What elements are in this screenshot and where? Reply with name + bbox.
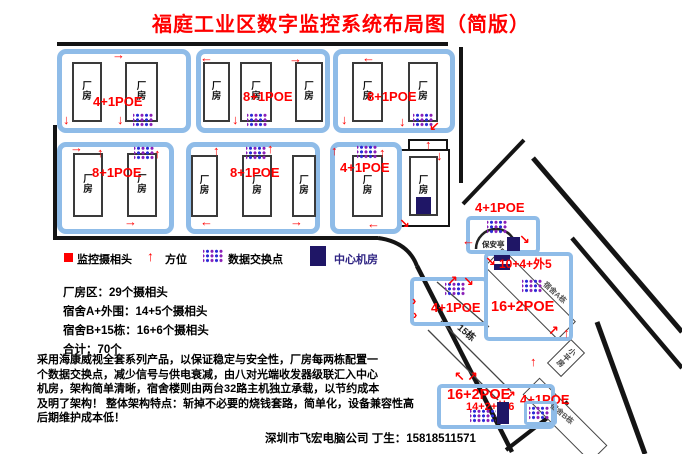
- security-booth-label: 保安亭: [482, 239, 505, 250]
- direction-arrow-icon: ←: [362, 51, 375, 64]
- poe-label: 4+1POE: [475, 201, 525, 214]
- poe-label: 16+2POE: [491, 300, 554, 315]
- direction-arrow-icon: →: [70, 141, 83, 154]
- factory-building: 厂房: [73, 153, 103, 217]
- direction-arrow-icon: ↓: [399, 115, 406, 128]
- road: [597, 322, 645, 454]
- direction-arrow-icon: ↗: [548, 324, 559, 337]
- direction-arrow-icon: ↑: [379, 146, 386, 159]
- direction-arrow-icon: ↗: [505, 389, 516, 402]
- server-room-legend-icon: [310, 246, 326, 266]
- factory-building: 厂房: [295, 62, 323, 122]
- description-line: 机房，架构简单清晰，宿舍楼则由两台32路主机独立承载，以节约成本: [37, 382, 414, 397]
- stats-line: 宿舍A+外围：14+5个摄相头: [63, 303, 207, 319]
- direction-arrow-icon: ↘: [399, 217, 410, 230]
- direction-arrow-icon: ↑: [267, 142, 274, 155]
- poe-label: 8+1POE: [367, 90, 417, 103]
- description-line: 采用海康威视全套系列产品，以保证稳定与安全性，厂房每两栋配置一: [37, 353, 414, 368]
- factory-building: 厂房: [203, 62, 230, 122]
- poe-label: 8+1POE: [243, 90, 293, 103]
- poe-label: 4+1POE: [93, 95, 143, 108]
- direction-arrow-icon: →: [289, 52, 302, 65]
- building-label: 厂房: [199, 176, 210, 197]
- direction-arrow-icon: ↓: [341, 113, 348, 126]
- direction-arrow-icon: ›: [412, 294, 416, 307]
- legend-direction-label: 方位: [165, 251, 187, 267]
- direction-arrow-icon: ↖: [454, 370, 465, 383]
- description-paragraph: 采用海康威视全套系列产品，以保证稳定与安全性，厂房每两栋配置一 个数据交换点，减…: [37, 353, 414, 426]
- data-exchange-dots: [134, 146, 154, 160]
- switch-legend-icon: [203, 249, 223, 263]
- data-exchange-dots: [133, 113, 153, 127]
- building-label: 厂房: [418, 176, 429, 197]
- direction-arrow-icon: ↙: [429, 120, 440, 133]
- poe-label: 4+1POE: [340, 161, 390, 174]
- building-label: 厂房: [362, 176, 373, 197]
- poe-label: 4+1POE: [431, 301, 481, 314]
- road: [572, 238, 682, 368]
- factory-building: 厂房: [292, 155, 316, 217]
- page-title: 福庭工业区数字监控系统布局图（简版）: [0, 8, 682, 37]
- poe-label: 8+1POE: [230, 166, 280, 179]
- direction-arrow-icon: ↑: [563, 326, 570, 339]
- direction-legend-icon: ↑: [147, 249, 154, 263]
- legend-camera-label: 监控摄相头: [77, 251, 132, 267]
- direction-arrow-icon: ›: [413, 308, 417, 321]
- direction-arrow-icon: ↓: [436, 149, 443, 162]
- direction-arrow-icon: ↘: [519, 233, 530, 246]
- direction-arrow-icon: ↑: [213, 144, 220, 157]
- building-label: 厂房: [304, 82, 315, 103]
- road: [463, 140, 524, 204]
- description-line: 后期维护成本低！: [37, 411, 414, 426]
- direction-arrow-icon: →: [112, 48, 125, 61]
- data-exchange-dots: [470, 409, 496, 423]
- server-room-marker: [416, 197, 431, 214]
- direction-arrow-icon: ←: [462, 234, 475, 247]
- direction-arrow-icon: ←: [200, 215, 213, 228]
- data-exchange-dots: [487, 220, 507, 234]
- building-label: 厂房: [418, 82, 429, 103]
- direction-arrow-icon: →: [124, 215, 137, 228]
- direction-arrow-icon: ↓: [63, 113, 70, 126]
- layout-canvas: 福庭工业区数字监控系统布局图（简版） 厂房 厂房 厂房 厂房 厂房 厂房 厂房 …: [0, 0, 682, 454]
- direction-arrow-icon: ↗: [447, 274, 458, 287]
- direction-arrow-icon: ↘: [485, 255, 496, 268]
- direction-arrow-icon: →: [290, 215, 303, 228]
- direction-arrow-icon: ↓: [117, 113, 124, 126]
- building-label: 厂房: [82, 82, 93, 103]
- camera-legend-icon: [64, 253, 73, 262]
- factory-building: 厂房: [191, 155, 218, 217]
- data-exchange-dots: [247, 113, 267, 127]
- direction-arrow-icon: ↑: [154, 147, 161, 160]
- building-label: 厂房: [299, 176, 310, 197]
- data-exchange-dots: [357, 145, 377, 159]
- factory-building: 厂房: [72, 62, 102, 122]
- road-curve: [378, 238, 417, 266]
- direction-arrow-icon: ↑: [97, 146, 104, 159]
- stats-line: 厂房区：29个摄相头: [63, 284, 168, 300]
- footer-contact: 深圳市飞宏电脑公司 丁生：15818511571: [265, 430, 476, 446]
- description-line: 个数据交换点，减少信号与供电衰减，由八对光端收发器级联汇入中心: [37, 368, 414, 383]
- building-label: 厂房: [211, 82, 222, 103]
- direction-arrow-icon: ↑: [530, 355, 537, 368]
- direction-arrow-icon: ↑: [425, 138, 432, 151]
- direction-arrow-icon: ↗: [467, 370, 478, 383]
- description-line: 及明了架构！ 整体架构特点：斩掉不必要的烧钱套路，简单化，设备兼容性高: [37, 397, 414, 412]
- data-exchange-dots: [246, 146, 266, 160]
- poe-label: 8+1POE: [92, 166, 142, 179]
- direction-arrow-icon: ←: [367, 217, 380, 230]
- factory-building: 厂房: [127, 153, 157, 217]
- data-exchange-dots: [522, 279, 542, 293]
- legend-switch-label: 数据交换点: [228, 251, 283, 267]
- data-exchange-dots: [529, 406, 549, 420]
- legend-server-room-label: 中心机房: [334, 251, 378, 267]
- direction-arrow-icon: ↓: [232, 113, 239, 126]
- server-room-marker: [497, 402, 509, 424]
- direction-arrow-icon: ↑: [331, 144, 338, 157]
- direction-arrow-icon: ←: [200, 51, 213, 64]
- poe-label: 10+4+外5: [499, 258, 552, 270]
- stats-line: 宿舍B+15栋：16+6个摄相头: [63, 322, 209, 338]
- direction-arrow-icon: ↘: [463, 275, 474, 288]
